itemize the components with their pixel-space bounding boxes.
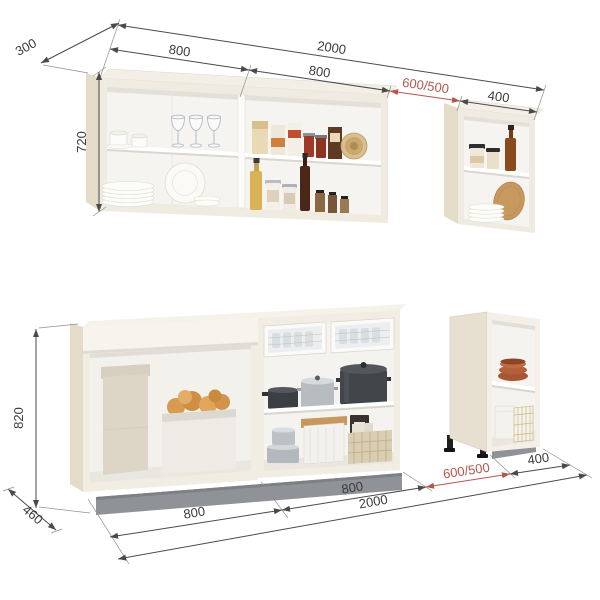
oil-bottle [250,171,262,210]
food-box-label [288,130,301,138]
jam-jar [316,138,326,158]
base-cabinet-side-panel [70,323,83,492]
oil-bottle-cap [254,158,260,163]
dim-label-upper-height: 720 [74,131,89,153]
bread [209,390,222,403]
witness-line [43,65,88,73]
dim-label-upper-total: 2000 [316,38,347,57]
dim-label-lower-w2: 800 [340,478,364,496]
glass [339,329,347,344]
spice-jar [315,193,325,212]
wire-drawer [264,322,326,357]
dim-label-lower-w3: 400 [526,450,550,468]
witness-tick [39,507,90,513]
dim-label-lower-depth: 460 [20,502,46,527]
dim-label-upper-w1: 800 [168,42,192,60]
witness-line [534,85,546,120]
small-cabinet-side-panel [444,103,458,224]
glass [372,328,380,343]
bottle-cap [508,125,514,130]
witness-tick [51,529,62,533]
dim-label-upper-w3: 400 [487,88,511,106]
glass [294,332,302,347]
food-box [288,123,301,156]
wire-drawer [331,318,394,353]
sauce-bottle [505,138,516,171]
foot-base [444,448,455,452]
cup-rim [110,131,127,135]
cup-rim [132,134,147,138]
pot-rim [272,427,295,432]
dim-label-upper-w2: 800 [308,63,332,81]
pan-rim [268,387,298,393]
jar-label [284,193,295,204]
jar [487,152,499,169]
glass [283,333,291,348]
dark-box [328,127,342,159]
vinegar-bottle-neck [303,157,307,167]
glass [350,329,358,344]
witness-line [490,455,515,478]
base-cabinet-drawers-800 [258,304,406,478]
jar-label [470,156,484,163]
dark-box-label [330,133,340,142]
lid-knob [315,376,320,381]
plate [468,204,504,210]
bowl-opening [501,359,526,365]
glass [361,328,369,343]
bread [178,390,192,404]
glass [305,332,313,347]
vinegar-bottle [300,166,310,211]
food-box-label [271,138,285,147]
vinegar-bottle-cap [303,153,308,158]
jar-label [267,190,279,202]
bread-basket [162,390,236,475]
spice-jar [340,199,349,213]
wall-cabinet-400 [444,100,543,233]
dim-label-upper-gap: 600/500 [401,75,450,97]
oil-bottle-neck [254,162,259,172]
plate [194,200,220,206]
witness-tick [3,487,14,491]
bottom-items [495,406,533,442]
glass [272,333,280,348]
trash-bin-body [103,374,148,475]
bottle-neck [509,129,513,139]
dim-label-lower-total: 2000 [358,492,389,512]
dim-label-lower-w1: 800 [182,503,206,521]
cereal-box-top [252,121,268,129]
wall-cabinet-center-divider [238,95,245,208]
side-door-panel [450,312,487,452]
dim-label-lower-height: 820 [11,407,26,429]
amber-bowls [498,359,528,382]
plate [102,182,154,191]
kitchen-dimension-diagram: 300 720 2000 800 800 600/500 400 [0,0,600,600]
round-tin-center [350,142,358,150]
dim-label-upper-depth: 300 [13,35,39,58]
stockpot-highlight [344,372,349,402]
lid-knob [361,362,367,368]
diagram-canvas: 300 720 2000 800 800 600/500 400 [0,0,600,600]
steel-pot [301,381,334,408]
spice-jar [328,195,337,213]
jar-lid [486,148,500,152]
base-cabinet-open-400 [444,312,540,459]
dim-line-lower-400 [510,465,570,474]
witness-line [543,449,592,478]
trash-bin [101,364,150,475]
foot-base [477,454,488,458]
